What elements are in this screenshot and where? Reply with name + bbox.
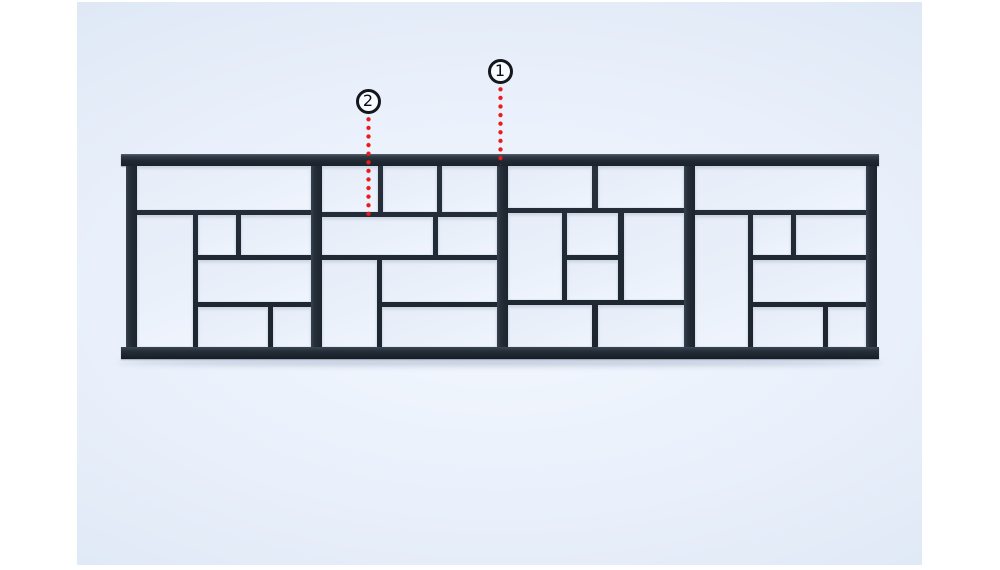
railing-cell bbox=[567, 260, 618, 300]
callout-1-label: 1 bbox=[495, 63, 505, 79]
railing-panel-1 bbox=[137, 166, 311, 347]
railing-panel-4 bbox=[695, 166, 866, 347]
railing-cell bbox=[598, 305, 684, 347]
railing-cell bbox=[382, 307, 497, 347]
railing-cell bbox=[598, 166, 684, 208]
railing-cell bbox=[442, 166, 497, 212]
callout-2-leader-line bbox=[366, 115, 371, 216]
railing-cell bbox=[273, 307, 311, 347]
callout-2-badge[interactable]: 2 bbox=[356, 89, 381, 114]
railing-cell bbox=[137, 166, 311, 210]
railing-floor-shadow bbox=[117, 359, 883, 366]
callout-1-badge[interactable]: 1 bbox=[488, 59, 513, 84]
railing-cell bbox=[567, 213, 618, 255]
railing-panel-3 bbox=[508, 166, 684, 347]
railing-post-5 bbox=[866, 166, 877, 347]
railing-cell bbox=[695, 166, 866, 210]
render-scene: 12 bbox=[77, 2, 922, 565]
railing-post-3 bbox=[497, 166, 508, 347]
railing-cell bbox=[753, 215, 791, 255]
railing-cell bbox=[198, 215, 236, 255]
railing-cell bbox=[137, 215, 193, 347]
railing-cell bbox=[508, 166, 592, 208]
railing-cell bbox=[198, 307, 268, 347]
railing-cell bbox=[322, 260, 377, 347]
railing-cell bbox=[438, 217, 497, 255]
railing-cell bbox=[624, 213, 684, 300]
railing-cell bbox=[383, 166, 437, 212]
railing-panel-2 bbox=[322, 166, 497, 347]
railing-cell bbox=[796, 215, 866, 255]
railing-cell bbox=[198, 260, 311, 302]
callout-2-label: 2 bbox=[363, 93, 373, 109]
railing-cell bbox=[382, 260, 497, 302]
railing-cell bbox=[508, 305, 592, 347]
railing-post-4 bbox=[684, 166, 695, 347]
railing-cell bbox=[753, 260, 866, 302]
railing-post-2 bbox=[311, 166, 322, 347]
railing-cell bbox=[241, 215, 311, 255]
railing-cell bbox=[828, 307, 866, 347]
railing-cell bbox=[322, 217, 433, 255]
railing-bottom-rail bbox=[121, 347, 879, 359]
railing-cell bbox=[753, 307, 823, 347]
railing-cell bbox=[508, 213, 562, 300]
railing-post-1 bbox=[126, 166, 137, 347]
railing-cell bbox=[695, 215, 748, 347]
callout-1-leader-line bbox=[498, 85, 503, 165]
